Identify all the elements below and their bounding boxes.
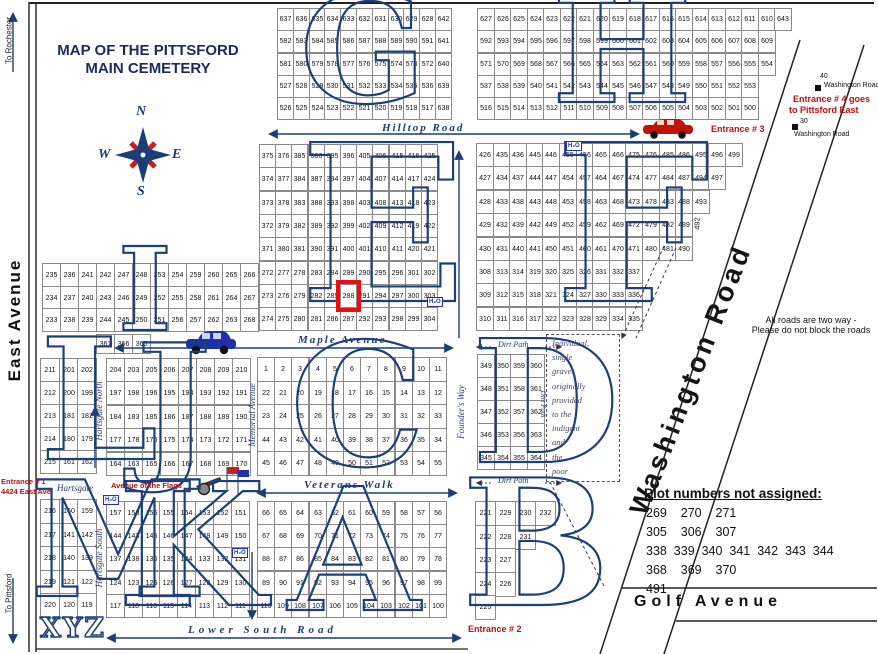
plot-cell: 437 [509, 166, 527, 190]
plot-cell: 95 [360, 571, 378, 595]
plot-cell: 250 [132, 308, 151, 332]
plot-cell: 565 [576, 53, 594, 76]
plot-cell: 27 [326, 404, 344, 429]
plot-cell: 364 [527, 446, 545, 470]
plot-cell: 371 [259, 237, 276, 261]
plot-cell: 46 [274, 451, 292, 476]
plot-cell: 69 [291, 524, 309, 548]
plot-cell: 39 [343, 428, 361, 453]
unassigned-row: 368 369 370 [646, 561, 834, 580]
plot-cell: 130 [231, 571, 250, 595]
plot-cell: 454 [559, 166, 577, 190]
plot-cell: 641 [435, 30, 452, 53]
founders-way-label: Founder's Way [456, 362, 466, 462]
plot-cell: 50 [343, 451, 361, 476]
plot-cell: 256 [168, 308, 187, 332]
plot-cell: 504 [675, 97, 693, 120]
plot-cell: 29 [360, 404, 378, 429]
plot-cell: 295 [372, 261, 389, 285]
plot-cell: 573 [403, 53, 420, 76]
plot-cell: 397 [340, 167, 357, 191]
indigent-note-line: and [552, 435, 616, 449]
plot-cell: 214 [40, 427, 60, 451]
plot-cell: 406 [372, 144, 389, 168]
plot-cell: 21 [274, 381, 292, 406]
plot-cell: 25 [291, 404, 309, 429]
plot-cell: 526 [277, 97, 294, 120]
plot-cell: 567 [543, 53, 561, 76]
plot-cell: 48 [309, 451, 327, 476]
plot-cell: 123 [124, 571, 143, 595]
plot-cell: 226 [495, 572, 516, 597]
compass-s-label: S [137, 184, 145, 200]
plot-cell: 259 [186, 263, 205, 287]
plot-cell: 390 [308, 237, 325, 261]
plot-cell: 381 [291, 237, 308, 261]
plot-cell: 563 [609, 53, 627, 76]
plot-cell: 44 [257, 428, 275, 453]
plot-cell: 183 [124, 405, 143, 429]
unassigned-title: Plot numbers not assigned: [644, 486, 822, 501]
plot-cell: 207 [178, 358, 197, 382]
plot-cell: 13 [412, 381, 430, 406]
plot-cell: 20 [291, 381, 309, 406]
plot-cell: 234 [42, 286, 61, 310]
plot-cell: 53 [395, 451, 413, 476]
plot-cell: 476 [642, 143, 660, 167]
plot-cell: 535 [403, 75, 420, 98]
plot-cell: 452 [559, 213, 577, 237]
plot-cell: 104 [360, 594, 378, 618]
plot-cell: 24 [274, 404, 292, 429]
plot-cell: 609 [758, 30, 776, 53]
plot-cell: 72 [343, 524, 361, 548]
plot-cell: 176 [142, 428, 161, 452]
plot-cell: 16 [360, 381, 378, 406]
plot-cell: 127 [177, 571, 196, 595]
plot-cell: 422 [421, 214, 438, 238]
plot-cell: 97 [395, 571, 413, 595]
plot-cell: 9 [395, 357, 413, 382]
plot-cell: 23 [257, 404, 275, 429]
wash-marker-40-square [815, 85, 821, 91]
plot-cell: 294 [372, 284, 389, 308]
plot-cell: 586 [340, 30, 357, 53]
plot-cell: 446 [542, 143, 560, 167]
plot-cell: 288 [340, 284, 357, 308]
plot-cell: 583 [293, 30, 310, 53]
plot-cell: 140 [59, 546, 79, 571]
plot-cell: 102 [395, 594, 413, 618]
plot-cell: 126 [159, 571, 178, 595]
plot-cell: 472 [625, 213, 643, 237]
plot-cell: 302 [421, 261, 438, 285]
plot-cell: 594 [510, 30, 528, 53]
plot-cell: 40 [326, 428, 344, 453]
plot-cell: 52 [377, 451, 395, 476]
unassigned-row: 305 306 307 [646, 523, 834, 542]
plot-cell: 324 [559, 283, 577, 307]
plot-cell: 429 [476, 213, 494, 237]
plot-cell: 241 [78, 263, 97, 287]
plot-cell: 321 [542, 283, 560, 307]
two-way-note: All roads are two way - Please do not bl… [744, 315, 878, 335]
plot-cell: 70 [309, 524, 327, 548]
plot-cell: 427 [476, 166, 494, 190]
plot-cell: 192 [214, 381, 233, 405]
plot-cell: 49 [326, 451, 344, 476]
plot-cell: 389 [308, 214, 325, 238]
water-marker: H₂O [427, 297, 443, 307]
plot-cell: 304 [421, 307, 438, 331]
plot-cell: 403 [356, 191, 373, 215]
plot-cell: 508 [609, 97, 627, 120]
plot-cell: 387 [308, 167, 325, 191]
plot-cell: 578 [324, 53, 341, 76]
plot-cell: 36 [395, 428, 413, 453]
plot-cell: 222 [475, 525, 496, 550]
entrance-1-address: 4424 East Ave [1, 487, 51, 496]
plot-cell: 506 [642, 97, 660, 120]
plot-cell: 395 [324, 144, 341, 168]
plot-cell: 268 [240, 308, 259, 332]
hartsgate-south-label: Hartsgate South [94, 508, 104, 608]
plot-cell: 128 [195, 571, 214, 595]
indigent-note-line: provided [552, 393, 616, 407]
plot-cell: 487 [675, 166, 693, 190]
plot-cell: 59 [377, 501, 395, 525]
plot-cell: 514 [510, 97, 528, 120]
plot-cell: 606 [708, 30, 726, 53]
plot-cell: 576 [356, 53, 373, 76]
plot-cell: 89 [257, 571, 275, 595]
plot-cell: 62 [326, 501, 344, 525]
plot-cell: 347 [477, 400, 495, 424]
water-marker: H₂O [566, 141, 582, 151]
plot-cell: 438 [509, 190, 527, 214]
plot-cell: 76 [412, 524, 430, 548]
plot-cell: 336 [625, 283, 643, 307]
plot-cell: 419 [405, 214, 422, 238]
indigent-note-line: to the [552, 407, 616, 421]
plot-cell: 1 [257, 357, 275, 382]
plot-cell: 178 [124, 428, 143, 452]
plot-cell: 399 [340, 214, 357, 238]
plot-cell: 265 [222, 263, 241, 287]
two-way-note-line2: Please do not block the roads [744, 325, 878, 335]
plot-cell: 189 [214, 405, 233, 429]
plot-cell: 451 [559, 237, 577, 261]
plot-cell: 436 [509, 143, 527, 167]
plot-cell: 161 [59, 450, 79, 474]
entrance-2-label: Entrance # 2 [468, 624, 522, 634]
plot-cell: 414 [389, 167, 406, 191]
plot-cell: 559 [675, 53, 693, 76]
plot-cell: 273 [259, 284, 276, 308]
plot-cell: 523 [324, 97, 341, 120]
plot-cell: 299 [405, 307, 422, 331]
plot-cell: 561 [642, 53, 660, 76]
plot-cell: 634 [324, 8, 341, 31]
plot-cell: 115 [159, 594, 178, 618]
plot-cell: 148 [195, 524, 214, 548]
plot-cell: 554 [758, 53, 776, 76]
plot-cell: 55 [429, 451, 447, 476]
plot-cell: 590 [403, 30, 420, 53]
dirt-path-vertical-label: Dirt Path [539, 374, 547, 434]
plot-cell: 471 [625, 237, 643, 261]
plot-cell: 264 [222, 286, 241, 310]
plot-cell: 408 [372, 191, 389, 215]
plot-cell: 479 [642, 213, 660, 237]
plot-cell: 488 [675, 190, 693, 214]
plot-cell: 617 [642, 8, 660, 31]
plot-cell: 132 [213, 547, 232, 571]
plot-cell: 402 [356, 214, 373, 238]
plot-cell: 539 [510, 75, 528, 98]
plot-cell: 229 [495, 501, 516, 526]
plot-cell: 108 [291, 594, 309, 618]
plot-cell: 18 [326, 381, 344, 406]
plot-cell: 7 [360, 357, 378, 382]
plot-cell: 355 [510, 446, 528, 470]
plot-cell: 420 [405, 237, 422, 261]
plot-cell: 474 [625, 166, 643, 190]
plot-cell: 464 [592, 166, 610, 190]
plot-cell: 615 [675, 8, 693, 31]
plot-cell: 450 [542, 237, 560, 261]
plot-cell: 201 [59, 358, 79, 382]
plot-cell: 448 [542, 190, 560, 214]
plot-cell: 45 [257, 451, 275, 476]
plot-cell: 497 [708, 166, 726, 190]
plot-cell: 530 [324, 75, 341, 98]
plot-cell: 276 [275, 284, 292, 308]
plot-cell: 409 [372, 214, 389, 238]
plot-cell: 462 [592, 213, 610, 237]
plot-cell: 310 [476, 307, 494, 331]
plot-cell: 185 [142, 405, 161, 429]
plot-cell: 57 [412, 501, 430, 525]
indigent-graves-note: Individual,singlegravesoriginallyprovide… [552, 336, 616, 478]
plot-cell: 536 [419, 75, 436, 98]
plot-cell: 587 [356, 30, 373, 53]
plot-cell: 216 [40, 499, 60, 524]
plot-cell: 337 [625, 260, 643, 284]
plot-cell: 315 [509, 283, 527, 307]
plot-cell: 67 [257, 524, 275, 548]
plot-cell: 151 [231, 501, 250, 525]
plot-cell: 212 [40, 381, 60, 405]
water-marker: H₂O [103, 495, 119, 505]
plot-cell: 517 [419, 97, 436, 120]
plot-cell: 64 [291, 501, 309, 525]
plot-cell: 278 [291, 261, 308, 285]
plot-cell: 172 [214, 428, 233, 452]
plot-cell: 366 [114, 334, 133, 354]
plot-cell: 150 [231, 524, 250, 548]
plot-cell: 411 [389, 237, 406, 261]
entrance-4-label-line2: to Pittsford East [789, 105, 859, 115]
indigent-note-line: Individual, [552, 336, 616, 350]
veterans-walk-label: Veterans Walk [304, 479, 395, 491]
plot-cell: 388 [308, 191, 325, 215]
plot-cell: 473 [625, 190, 643, 214]
plot-cell: 35 [412, 428, 430, 453]
plot-cell: 221 [475, 501, 496, 526]
entrance-4-label-line1: Entrance # 4 goes [793, 94, 870, 104]
plot-cell: 180 [59, 427, 79, 451]
plot-cell: 112 [213, 594, 232, 618]
plot-cell: 206 [160, 358, 179, 382]
plot-cell: 231 [515, 525, 536, 550]
plot-cell: 499 [725, 143, 743, 167]
plot-cell: 293 [372, 307, 389, 331]
plot-cell: 121 [59, 570, 79, 595]
plot-cell: 133 [195, 547, 214, 571]
entrance-1-label: Entrance # 1 [1, 477, 46, 486]
wash-marker-40-number: 40 [820, 73, 828, 80]
plot-cell: 227 [495, 548, 516, 573]
plot-cell: 93 [326, 571, 344, 595]
plot-cell: 215 [40, 450, 60, 474]
plot-cell: 197 [106, 381, 125, 405]
plot-cell: 356 [510, 423, 528, 447]
plot-cell: 477 [642, 166, 660, 190]
plot-cell: 425 [421, 144, 438, 168]
plot-cell: 637 [277, 8, 294, 31]
plot-cell: 631 [372, 8, 389, 31]
plot-cell: 188 [196, 405, 215, 429]
plot-cell: 251 [150, 308, 169, 332]
plot-cell: 385 [291, 144, 308, 168]
plot-cell: 98 [412, 571, 430, 595]
plot-cell: 298 [389, 307, 406, 331]
plot-cell: 629 [403, 8, 420, 31]
plot-cell: 520 [372, 97, 389, 120]
plot-cell: 421 [421, 237, 438, 261]
compass-w-label: W [98, 147, 110, 163]
plot-cell: 111 [231, 594, 250, 618]
plot-cell: 300 [405, 284, 422, 308]
plot-cell: 386 [308, 144, 325, 168]
plot-cell: 15 [377, 381, 395, 406]
plot-cell: 246 [114, 286, 133, 310]
plot-cell: 461 [592, 237, 610, 261]
plot-cell: 10 [412, 357, 430, 382]
plot-cell: 393 [324, 191, 341, 215]
hilltop-road-label: Hilltop Road [382, 122, 464, 134]
plot-cell: 186 [160, 405, 179, 429]
plot-cell: 522 [340, 97, 357, 120]
dirt-path-top-label: Dirt Path [498, 340, 528, 349]
plot-cell: 642 [435, 8, 452, 31]
plot-cell: 283 [308, 261, 325, 285]
plot-cell: 380 [275, 237, 292, 261]
map-title-line1: MAP OF THE PITTSFORD [42, 42, 254, 59]
plot-cell: 28 [343, 404, 361, 429]
indigent-note-line: originally [552, 379, 616, 393]
plot-cell: 376 [275, 144, 292, 168]
plot-cell: 79 [412, 547, 430, 571]
plot-cell: 296 [389, 261, 406, 285]
plot-cell: 582 [277, 30, 294, 53]
plot-cell: 502 [708, 97, 726, 120]
plot-cell: 375 [259, 144, 276, 168]
plot-cell: 277 [275, 261, 292, 285]
plot-cell: 243 [96, 286, 115, 310]
plot-cell: 543 [576, 75, 594, 98]
plot-cell: 527 [277, 75, 294, 98]
plot-cell: 335 [625, 307, 643, 331]
plot-cell: 292 [356, 307, 373, 331]
plot-cell: 85 [309, 547, 327, 571]
plot-cell: 632 [356, 8, 373, 31]
plot-cell: 636 [293, 8, 310, 31]
dirt-path-bottom-label: Dirt Path [498, 476, 528, 485]
plot-cell: 205 [142, 358, 161, 382]
plot-cell: 51 [360, 451, 378, 476]
plot-cell: 14 [395, 381, 413, 406]
plot-cell: 533 [372, 75, 389, 98]
plot-cell: 600 [609, 30, 627, 53]
plot-cell: 4 [309, 357, 327, 382]
plot-cell: 218 [40, 546, 60, 571]
plot-cell: 553 [741, 75, 759, 98]
plot-cell: 384 [291, 167, 308, 191]
plot-cell: 8 [377, 357, 395, 382]
plot-cell: 439 [509, 213, 527, 237]
plot-cell: 391 [324, 237, 341, 261]
plot-cell: 608 [741, 30, 759, 53]
plot-cell: 496 [708, 143, 726, 167]
plot-cell: 329 [592, 307, 610, 331]
plot-cell: 245 [114, 308, 133, 332]
plot-cell: 75 [395, 524, 413, 548]
plot-cell: 164 [106, 452, 125, 476]
plot-cell: 63 [309, 501, 327, 525]
plot-cell: 490 [675, 237, 693, 261]
map-title-line2: MAIN CEMETERY [42, 60, 254, 77]
plot-cell: 99 [429, 571, 447, 595]
plot-cell: 528 [293, 75, 310, 98]
plot-cell: 106 [326, 594, 344, 618]
plot-cell: 325 [559, 260, 577, 284]
plot-cell: 6 [343, 357, 361, 382]
plot-cell: 66 [257, 501, 275, 525]
plot-cell: 238 [60, 308, 79, 332]
plot-cell: 348 [477, 377, 495, 401]
plot-cell: 405 [356, 144, 373, 168]
plot-cell: 177 [106, 428, 125, 452]
plot-cell: 233 [42, 308, 61, 332]
plot-cell: 163 [124, 452, 143, 476]
plot-cell: 426 [476, 143, 494, 167]
plot-cell: 129 [213, 571, 232, 595]
wash-marker-30-square [792, 124, 798, 130]
plot-cell: 196 [142, 381, 161, 405]
plot-cell: 357 [510, 400, 528, 424]
plot-cell: 545 [609, 75, 627, 98]
plot-cell: 640 [435, 53, 452, 76]
plot-cell: 68 [274, 524, 292, 548]
plot-cell: 500 [741, 97, 759, 120]
plot-cell: 591 [419, 30, 436, 53]
plot-cell: 86 [291, 547, 309, 571]
plot-cell: 331 [592, 260, 610, 284]
plot-cell: 239 [78, 308, 97, 332]
plot-cell: 137 [106, 547, 125, 571]
